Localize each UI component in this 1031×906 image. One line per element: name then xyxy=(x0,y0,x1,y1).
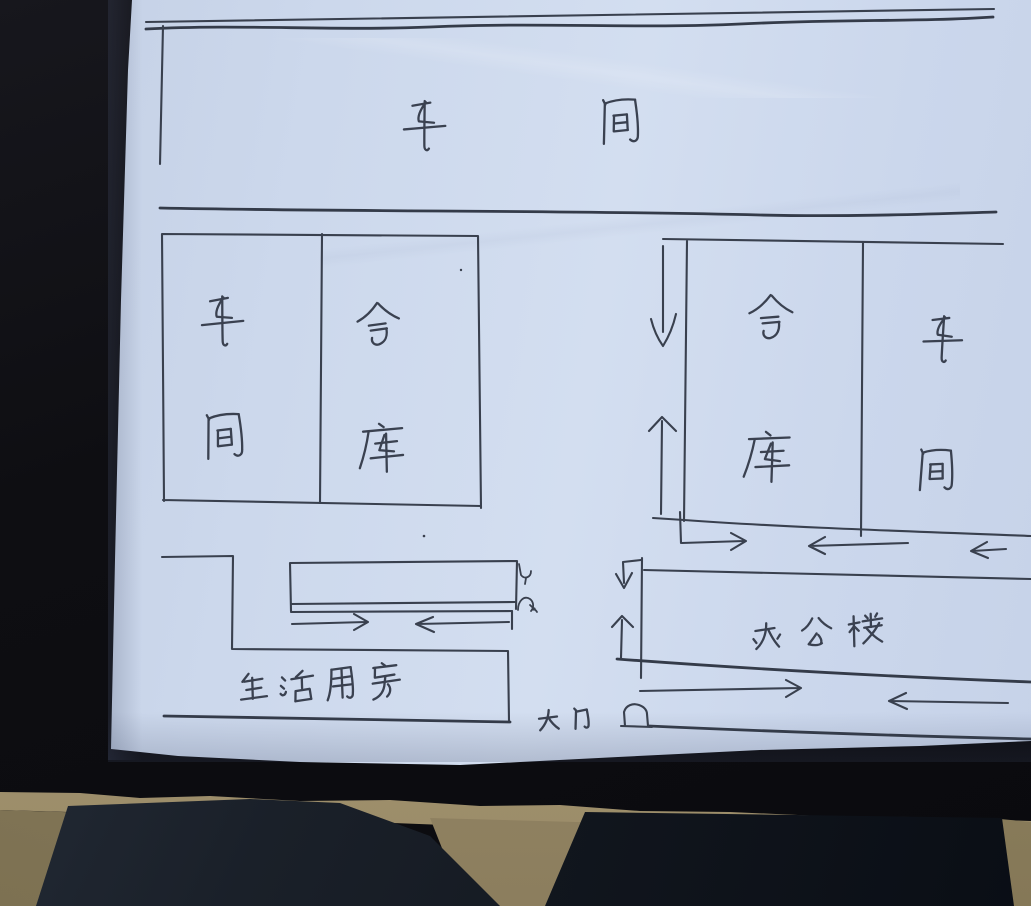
handwritten-char xyxy=(915,301,970,377)
right-block-corner-tick xyxy=(680,512,681,543)
handwritten-char xyxy=(349,297,407,357)
office-bottom-line xyxy=(617,659,1031,682)
handwritten-char xyxy=(274,662,319,715)
arrow-left-under-block xyxy=(809,537,908,554)
arrow-up xyxy=(649,417,676,514)
handwritten-char xyxy=(534,704,562,737)
band-bottom-line xyxy=(160,208,996,216)
arrow-right-under-block xyxy=(682,533,746,550)
arrow-up-office xyxy=(612,616,633,658)
handwritten-char xyxy=(353,419,411,479)
arrow-right-living xyxy=(292,614,368,630)
arrow-left-living xyxy=(416,617,509,632)
arrow-hook-down xyxy=(616,560,641,588)
label-left-workshop xyxy=(193,289,255,469)
gate xyxy=(621,704,652,727)
right-block-left xyxy=(684,241,687,521)
ink-dot xyxy=(532,607,535,610)
label-right-workshop xyxy=(910,301,969,509)
tiny-arrow-squiggle xyxy=(519,564,531,584)
right-block-divider xyxy=(861,243,863,536)
arrow-left-office xyxy=(889,693,1008,709)
right-block xyxy=(649,239,1031,558)
living-inner-line-2 xyxy=(291,611,512,612)
handwritten-char xyxy=(230,665,275,718)
living-bottom-line xyxy=(164,716,510,722)
handwritten-char xyxy=(747,610,790,662)
left-wall-line xyxy=(160,26,163,164)
gate-symbol xyxy=(621,704,652,727)
handwritten-char xyxy=(568,703,596,736)
ink-speck xyxy=(460,269,462,271)
ink-speck xyxy=(423,535,426,538)
label-main-gate xyxy=(534,703,596,737)
arrow-left-far-right xyxy=(971,542,1006,558)
right-block-top xyxy=(663,239,1003,244)
left-block-divider xyxy=(320,234,322,503)
arrow-down xyxy=(651,246,676,346)
photo-scene xyxy=(0,0,1031,906)
outer-top-line-rough xyxy=(146,17,993,29)
label-top-workshop xyxy=(395,82,650,166)
right-block-bottom xyxy=(653,518,1031,536)
arrow-right-office xyxy=(640,680,801,697)
label-right-warehouse xyxy=(738,290,799,489)
handwritten-char xyxy=(193,289,251,353)
road-bottom-line xyxy=(649,726,1031,739)
handwritten-char xyxy=(318,659,363,712)
handwritten-char xyxy=(741,290,800,351)
handwritten-char xyxy=(845,604,888,656)
handwritten-char xyxy=(593,82,650,163)
handwritten-char xyxy=(910,433,965,509)
handwritten-char xyxy=(738,427,797,488)
handwritten-char xyxy=(395,85,452,166)
handwritten-char xyxy=(362,656,407,709)
living-inner-line-1 xyxy=(291,602,516,604)
label-office-building xyxy=(747,604,887,661)
label-left-warehouse xyxy=(349,297,411,479)
handwritten-char xyxy=(197,405,255,469)
handwritten-char xyxy=(796,607,839,659)
office-top-line xyxy=(644,570,1031,579)
